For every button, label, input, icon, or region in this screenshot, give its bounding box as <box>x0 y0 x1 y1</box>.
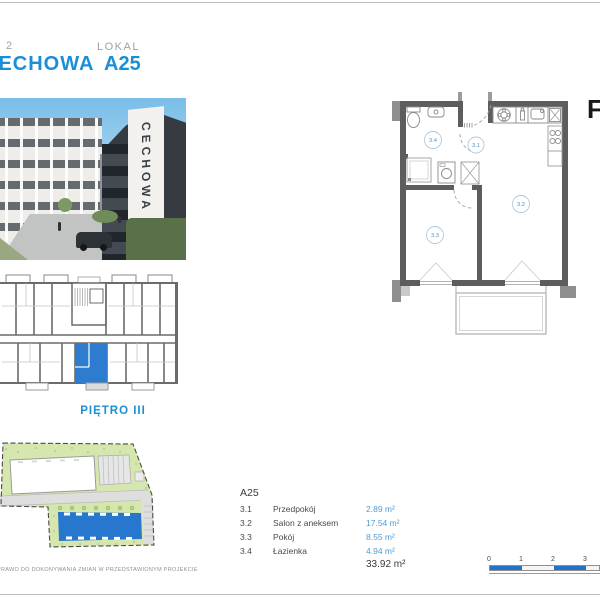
scale-bar-segments <box>489 565 600 571</box>
pedestrian <box>118 216 121 223</box>
table-row: 3.2 Salon z aneksem 17.54 m² <box>240 518 450 532</box>
table-row: 3.4 Łazienka 4.94 m² <box>240 546 450 560</box>
scale-segment <box>490 566 522 570</box>
table-row: 3.3 Pokój 8.55 m² <box>240 532 450 546</box>
car <box>76 232 112 248</box>
entry-threshold <box>465 123 473 128</box>
room-area: 8.55 m² <box>366 532 395 546</box>
table-row: 3.1 Przedpokój 2.89 m² <box>240 504 450 518</box>
balcony <box>456 286 546 334</box>
room-name: Salon z aneksem <box>273 518 366 532</box>
room-name: Pokój <box>273 532 366 546</box>
bottom-balconies <box>26 383 154 390</box>
room-number: 3.4 <box>240 546 273 560</box>
lokal-label: LOKAL <box>97 41 140 53</box>
highlighted-building <box>58 512 142 541</box>
scale-tick: 3 <box>580 556 590 563</box>
scale-tick: 2 <box>548 556 558 563</box>
exterior-wall-stubs <box>392 92 576 302</box>
site-plan <box>0 436 168 564</box>
building-photo: CECHOWA <box>0 98 186 260</box>
scale-underline <box>489 573 600 574</box>
walls <box>400 101 568 286</box>
gable-wall: CECHOWA <box>128 106 164 228</box>
scale-segment <box>554 566 586 570</box>
room-label-salon: 3.2 <box>517 202 525 208</box>
scale-segment <box>522 566 554 570</box>
staircase <box>72 277 106 325</box>
area-table: 3.1 Przedpokój 2.89 m² 3.2 Salon z aneks… <box>240 504 450 560</box>
room-area: 2.89 m² <box>366 504 395 518</box>
scale-tick: 1 <box>516 556 526 563</box>
project-name: CECHOWA <box>0 53 94 76</box>
apartment-floorplan: 3.4 3.1 3.3 3.2 <box>392 92 600 347</box>
pedestrian <box>58 222 61 231</box>
room-label-hall: 3.1 <box>472 143 480 149</box>
bottom-rule <box>0 594 600 595</box>
end-wall <box>175 283 178 383</box>
scale-segment <box>586 566 600 570</box>
hedge <box>126 218 186 260</box>
top-rule <box>0 2 600 3</box>
clipped-edge-letter: F <box>587 95 600 125</box>
room-label-bathroom: 3.4 <box>429 138 438 144</box>
scale-tick: 0 <box>484 556 494 563</box>
highlighted-unit <box>75 343 107 383</box>
tree <box>58 198 72 212</box>
building-sign: CECHOWA <box>139 121 153 213</box>
room-name: Przedpokój <box>273 504 366 518</box>
lokal-number: A25 <box>104 53 141 76</box>
room-number: 3.2 <box>240 518 273 532</box>
room-number: 3.3 <box>240 532 273 546</box>
scale-bar: 0 1 2 3 <box>489 556 600 574</box>
room-area: 17.54 m² <box>366 518 400 532</box>
room-area: 4.94 m² <box>366 546 395 560</box>
neighbor-building <box>10 456 96 494</box>
room-name: Łazienka <box>273 546 366 560</box>
room-number: 3.1 <box>240 504 273 518</box>
legend-title: A25 <box>240 487 259 499</box>
brochure-page: 2 CECHOWA LOKAL A25 CECHOWA <box>0 0 600 600</box>
bush <box>92 210 118 223</box>
car-wheel <box>100 244 107 251</box>
kitchen-fixtures <box>493 107 562 166</box>
stage-number: 2 <box>6 40 12 52</box>
room-label-room: 3.3 <box>431 233 439 239</box>
car-wheel <box>80 244 87 251</box>
wardrobe <box>461 162 479 184</box>
total-area: 33.92 m² <box>366 559 405 570</box>
disclaimer-text: PRAWO DO DOKONYWANIA ZMIAN W PRZEDSTAWIO… <box>0 567 198 573</box>
floor-label: PIĘTRO III <box>38 405 188 417</box>
floor-key-plan <box>0 272 185 397</box>
